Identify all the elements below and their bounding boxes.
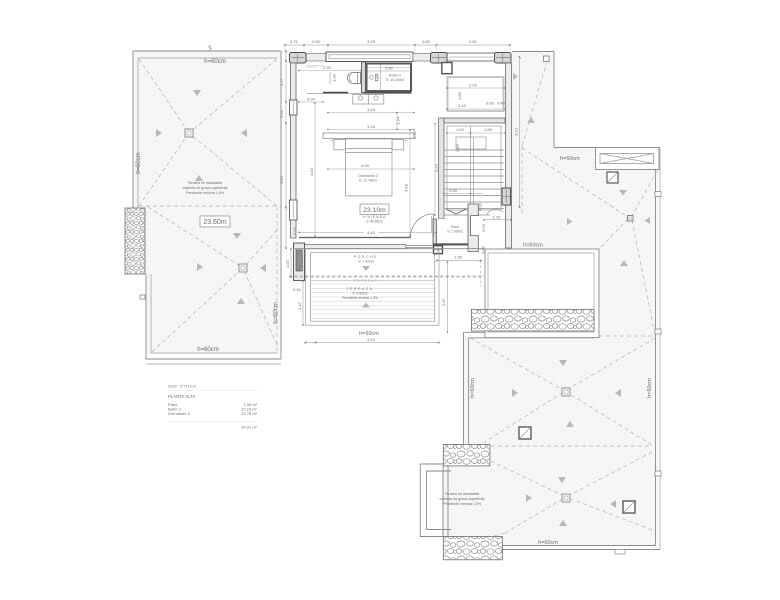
svg-text:2.00: 2.00 — [469, 83, 478, 88]
svg-text:Dormitorio 3: Dormitorio 3 — [168, 411, 191, 416]
svg-text:S: 10.15m2: S: 10.15m2 — [386, 78, 404, 82]
svg-text:0.40: 0.40 — [497, 101, 506, 106]
svg-text:3.89: 3.89 — [279, 175, 284, 184]
svg-text:3.10: 3.10 — [514, 127, 519, 136]
svg-text:2.10: 2.10 — [458, 103, 467, 108]
svg-text:0.60: 0.60 — [486, 101, 495, 106]
svg-text:S: 4.69m2: S: 4.69m2 — [352, 292, 368, 296]
svg-text:4.95: 4.95 — [361, 163, 370, 168]
svg-text:1.80: 1.80 — [484, 127, 493, 132]
svg-text:1.55: 1.55 — [454, 255, 463, 260]
svg-text:4.00: 4.00 — [309, 167, 314, 176]
svg-text:0.55: 0.55 — [292, 226, 297, 235]
svg-text:Dormitorio 3: Dormitorio 3 — [358, 174, 378, 178]
svg-text:0.70: 0.70 — [290, 39, 299, 44]
svg-text:3.24: 3.24 — [434, 163, 439, 172]
svg-text:6.62: 6.62 — [279, 109, 284, 118]
svg-text:h=60cm: h=60cm — [136, 152, 142, 174]
svg-text:22.78 m²: 22.78 m² — [241, 411, 257, 416]
svg-text:cubierta de grava superficial: cubierta de grava superficial — [440, 497, 485, 501]
svg-text:2.30: 2.30 — [323, 65, 332, 70]
svg-text:1.10: 1.10 — [493, 214, 502, 219]
svg-text:S: 7.42m2: S: 7.42m2 — [358, 260, 374, 264]
svg-text:Pendiente mínima 1,5%: Pendiente mínima 1,5% — [186, 191, 225, 195]
svg-text:h=60cm: h=60cm — [560, 156, 580, 162]
svg-text:1.00: 1.00 — [456, 127, 465, 132]
svg-text:0.95: 0.95 — [455, 143, 460, 152]
svg-text:0.33: 0.33 — [478, 202, 483, 211]
svg-text:h=60cm: h=60cm — [204, 59, 226, 65]
svg-text:23.60m: 23.60m — [203, 219, 227, 226]
svg-text:1.00: 1.00 — [332, 73, 337, 82]
svg-text:34.01 m²: 34.01 m² — [241, 425, 257, 430]
svg-text:VIVIENDA: VIVIENDA — [363, 215, 387, 219]
svg-text:h=60cm: h=60cm — [470, 378, 476, 398]
svg-text:S: 1.08m2: S: 1.08m2 — [447, 230, 463, 234]
svg-text:0.60: 0.60 — [422, 39, 431, 44]
svg-text:cubierta de grava superficial: cubierta de grava superficial — [183, 186, 228, 190]
svg-text:TERRAZA: TERRAZA — [346, 287, 373, 291]
svg-text:0.90: 0.90 — [307, 97, 316, 102]
svg-text:h=60cm: h=60cm — [197, 347, 219, 353]
svg-text:2.47: 2.47 — [441, 297, 446, 306]
svg-text:2.05: 2.05 — [457, 91, 462, 100]
svg-text:PORCHE: PORCHE — [354, 255, 378, 259]
svg-text:h=60cm: h=60cm — [274, 302, 280, 324]
svg-text:Pendiente mínima 1,5%: Pendiente mínima 1,5% — [342, 296, 378, 300]
svg-text:1.60: 1.60 — [385, 66, 394, 71]
svg-text:23.10m: 23.10m — [363, 207, 386, 214]
svg-text:Baño 3: Baño 3 — [389, 74, 400, 78]
svg-text:3.15: 3.15 — [367, 124, 376, 129]
svg-text:0.45: 0.45 — [481, 245, 486, 254]
svg-text:1.47: 1.47 — [297, 301, 302, 310]
svg-text:1.34: 1.34 — [396, 116, 401, 125]
svg-text:3.29: 3.29 — [367, 39, 376, 44]
svg-text:Paso: Paso — [451, 225, 459, 229]
svg-text:h=60cm: h=60cm — [523, 243, 543, 249]
svg-text:S: 49.36m2: S: 49.36m2 — [366, 220, 383, 224]
svg-text:h=60cm: h=60cm — [538, 540, 558, 546]
svg-text:0.30: 0.30 — [412, 130, 417, 139]
svg-text:0.95: 0.95 — [449, 188, 458, 193]
svg-text:PLANTA ALTA: PLANTA ALTA — [168, 394, 195, 399]
svg-text:4.40: 4.40 — [367, 230, 376, 235]
svg-text:1.65: 1.65 — [285, 259, 290, 268]
svg-text:h=60cm: h=60cm — [647, 378, 653, 398]
svg-text:0.30: 0.30 — [293, 287, 302, 292]
svg-text:3.58: 3.58 — [404, 183, 409, 192]
svg-text:1.00: 1.00 — [374, 73, 379, 82]
svg-text:0.60: 0.60 — [312, 39, 321, 44]
svg-text:S: 22.78m2: S: 22.78m2 — [359, 179, 377, 183]
svg-text:SUP. ÚTILES: SUP. ÚTILES — [168, 384, 196, 389]
svg-text:4.65: 4.65 — [367, 337, 376, 342]
svg-text:4.17: 4.17 — [279, 77, 284, 86]
svg-text:2.81: 2.81 — [469, 39, 478, 44]
svg-text:Terraza no transitable: Terraza no transitable — [188, 181, 223, 185]
svg-text:3.15: 3.15 — [367, 107, 376, 112]
svg-text:Terraza no transitable: Terraza no transitable — [445, 492, 480, 496]
svg-text:Pendiente mínima 1,5%: Pendiente mínima 1,5% — [443, 502, 482, 506]
svg-text:0.60: 0.60 — [481, 223, 486, 232]
